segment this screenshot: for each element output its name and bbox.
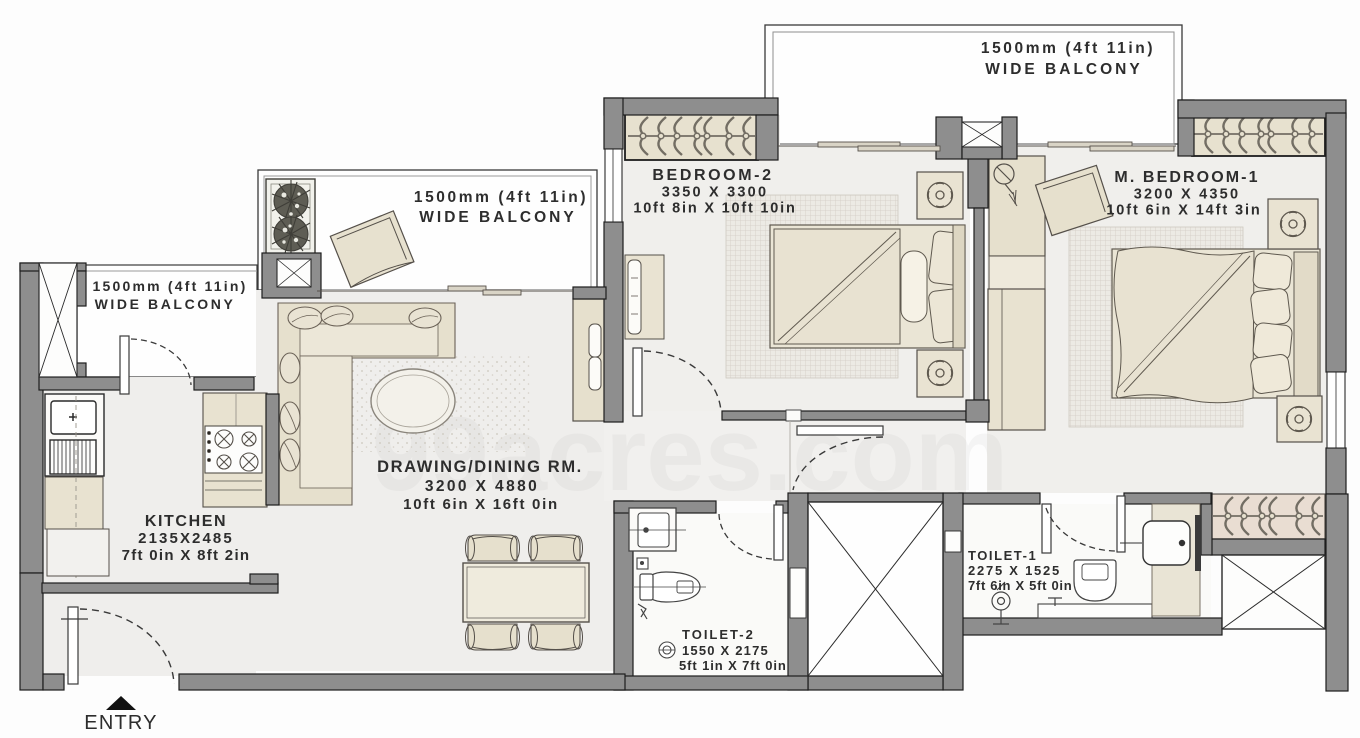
svg-text:KITCHEN: KITCHEN: [145, 513, 227, 530]
svg-text:10ft 6in X 14ft 3in: 10ft 6in X 14ft 3in: [1106, 203, 1261, 219]
svg-text:2135X2485: 2135X2485: [138, 530, 234, 547]
svg-text:3200 X 4350: 3200 X 4350: [1134, 187, 1240, 203]
svg-text:7ft 0in X 8ft 2in: 7ft 0in X 8ft 2in: [122, 547, 251, 564]
svg-text:DRAWING/DINING RM.: DRAWING/DINING RM.: [377, 458, 583, 476]
svg-text:WIDE BALCONY: WIDE BALCONY: [95, 296, 236, 312]
svg-text:1500mm (4ft 11in): 1500mm (4ft 11in): [981, 40, 1155, 57]
svg-text:3200 X 4880: 3200 X 4880: [425, 478, 539, 495]
svg-text:BEDROOM-2: BEDROOM-2: [652, 167, 773, 184]
svg-text:WIDE BALCONY: WIDE BALCONY: [985, 61, 1142, 78]
svg-text:2275 X 1525: 2275 X 1525: [968, 563, 1061, 578]
svg-text:7ft 6in X 5ft 0in: 7ft 6in X 5ft 0in: [968, 578, 1072, 593]
svg-text:10ft 6in X 16ft 0in: 10ft 6in X 16ft 0in: [403, 496, 559, 513]
svg-text:1550 X 2175: 1550 X 2175: [682, 643, 769, 658]
svg-text:WIDE BALCONY: WIDE BALCONY: [419, 209, 576, 226]
svg-text:TOILET-2: TOILET-2: [682, 627, 755, 642]
svg-text:ENTRY: ENTRY: [84, 712, 157, 734]
svg-text:5ft 1in X 7ft 0in: 5ft 1in X 7ft 0in: [679, 658, 787, 673]
svg-text:TOILET-1: TOILET-1: [968, 548, 1037, 563]
svg-text:10ft 8in X 10ft 10in: 10ft 8in X 10ft 10in: [633, 201, 796, 217]
svg-text:1500mm (4ft 11in): 1500mm (4ft 11in): [93, 278, 248, 294]
svg-text:1500mm (4ft 11in): 1500mm (4ft 11in): [414, 189, 588, 206]
svg-text:M. BEDROOM-1: M. BEDROOM-1: [1114, 169, 1259, 186]
svg-text:3350 X 3300: 3350 X 3300: [662, 185, 768, 201]
